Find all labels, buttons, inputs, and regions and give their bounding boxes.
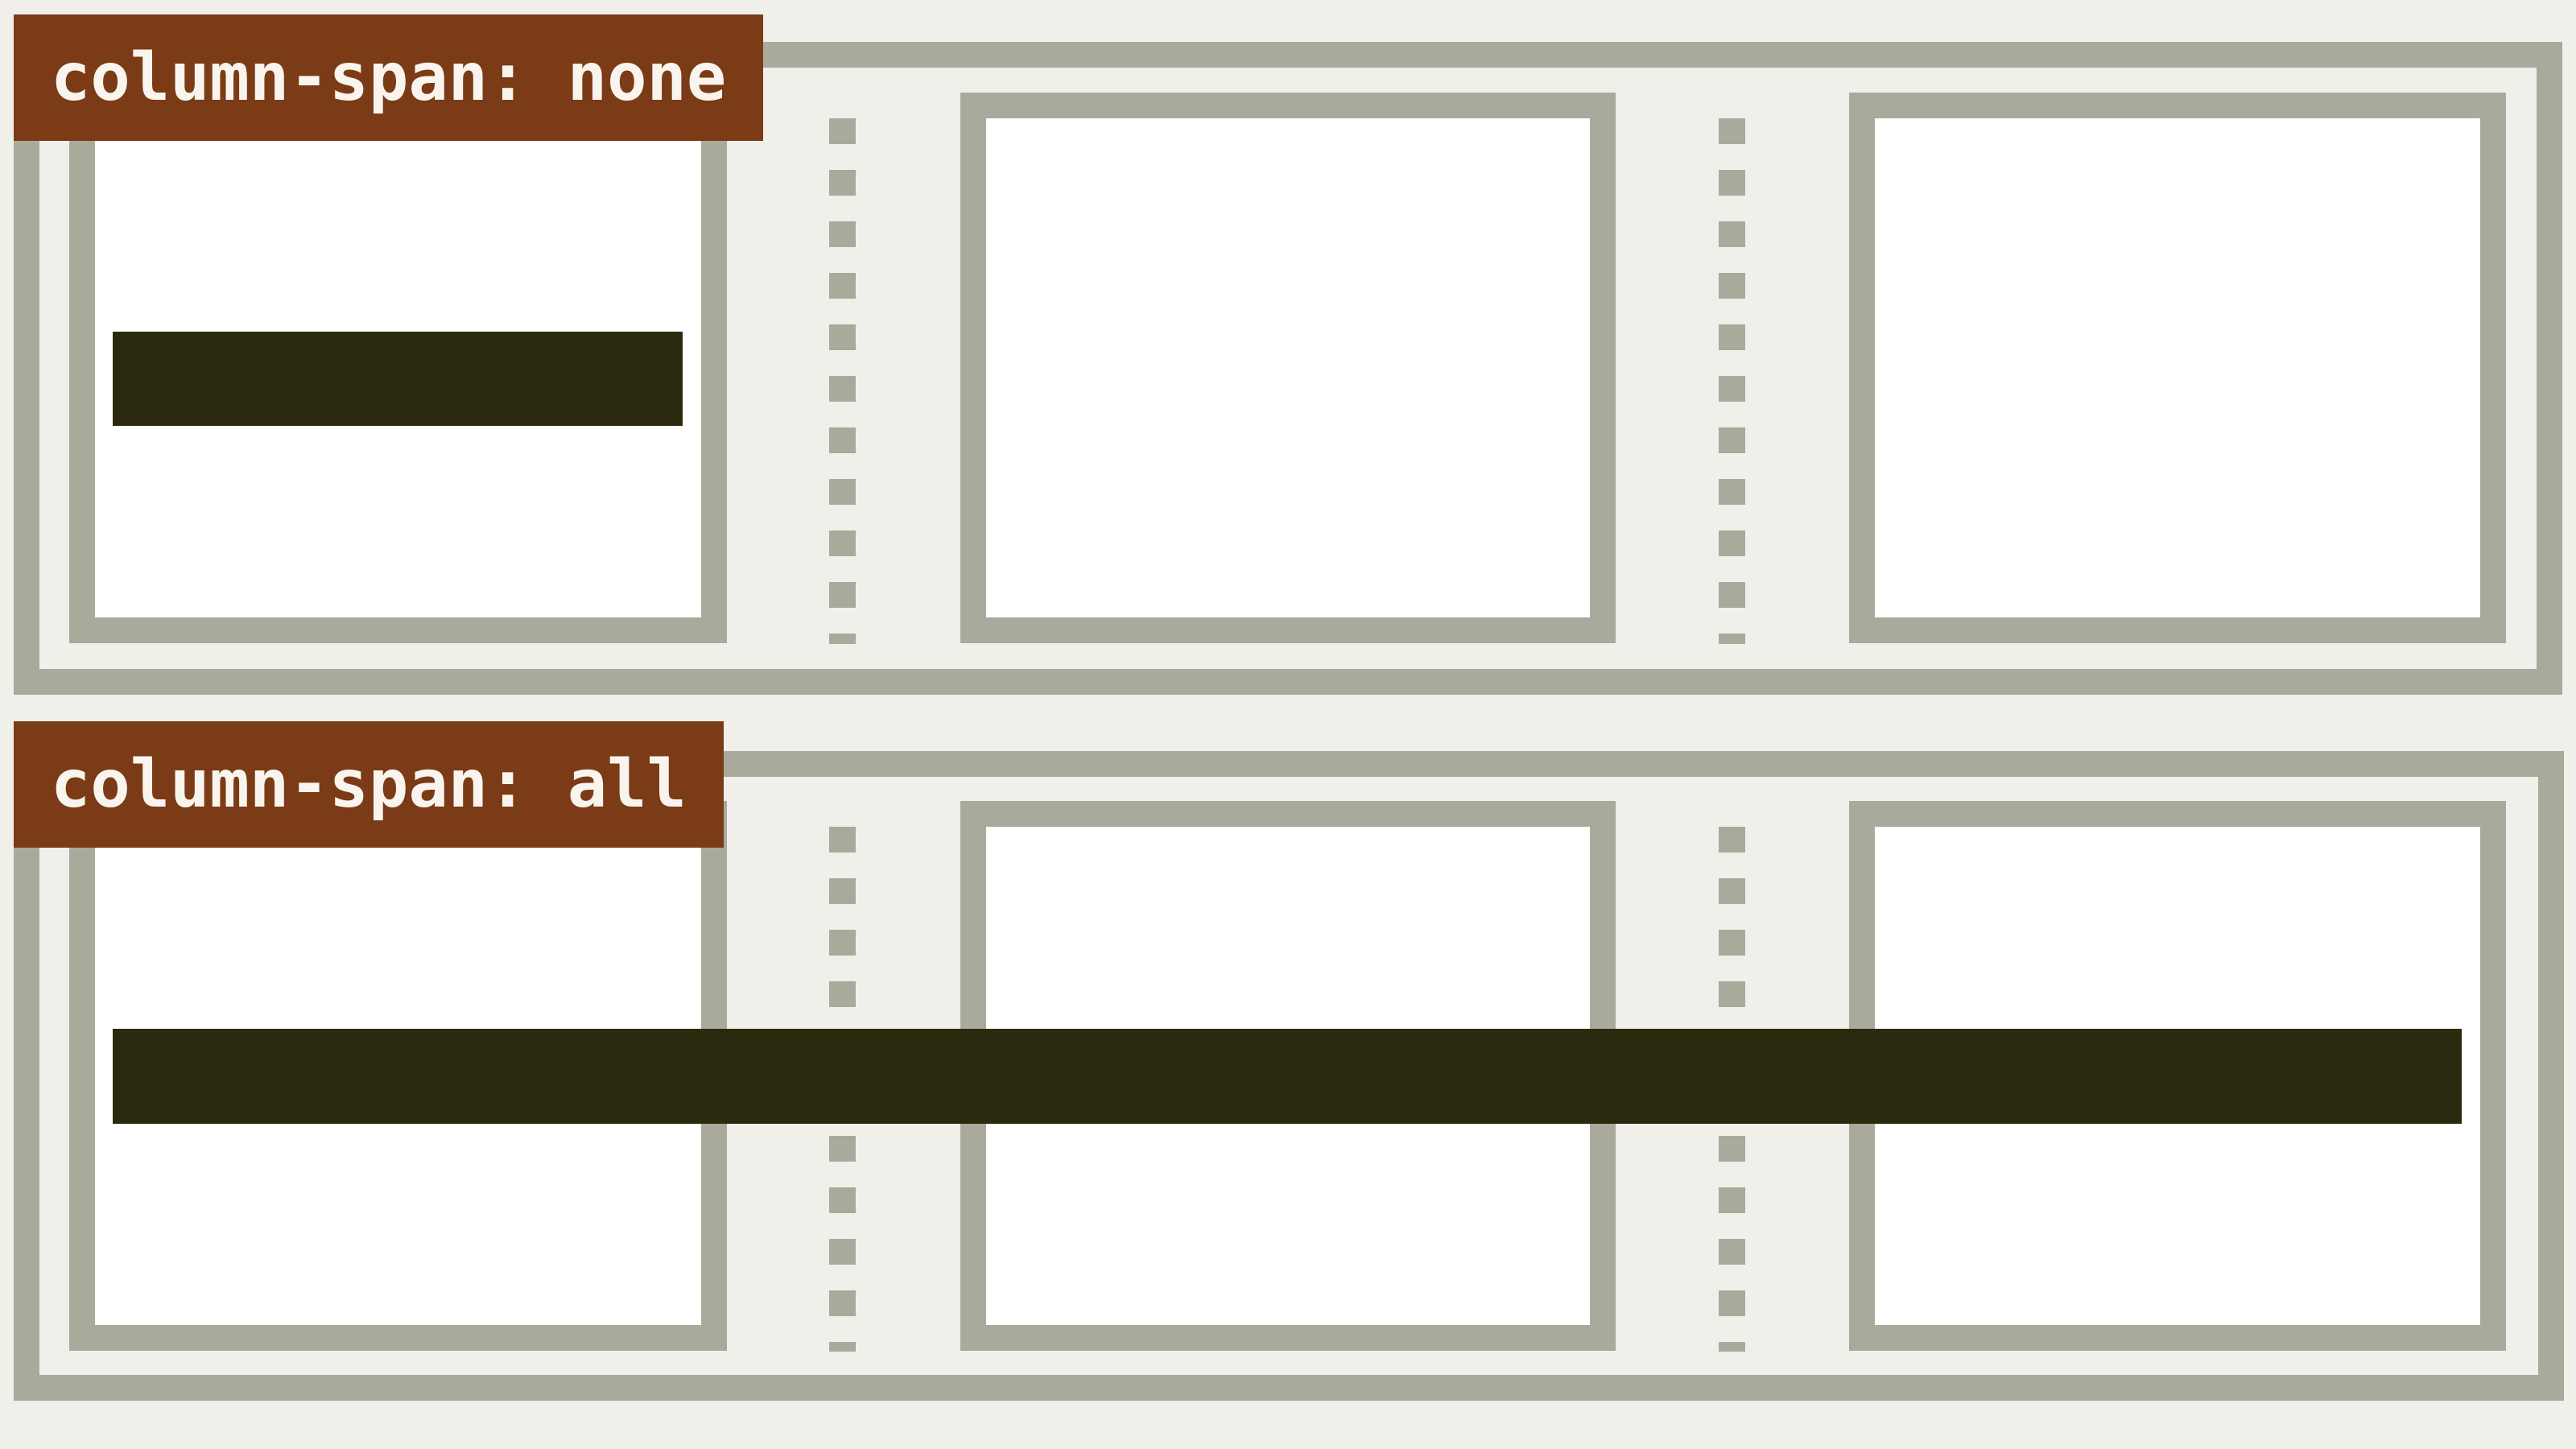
column-box-3 — [1849, 93, 2506, 643]
non-spanning-element-bar — [113, 332, 683, 426]
code-label-column-span-all: column-span: all — [14, 721, 724, 848]
column-rule-dashed — [829, 118, 856, 644]
column-span-diagram: column-span: none column-span: all — [0, 0, 2576, 1449]
spanning-element-bar — [113, 1029, 2462, 1124]
column-rule-dashed — [1719, 118, 1745, 644]
column-box-2 — [960, 93, 1616, 643]
code-label-column-span-none: column-span: none — [14, 14, 763, 141]
